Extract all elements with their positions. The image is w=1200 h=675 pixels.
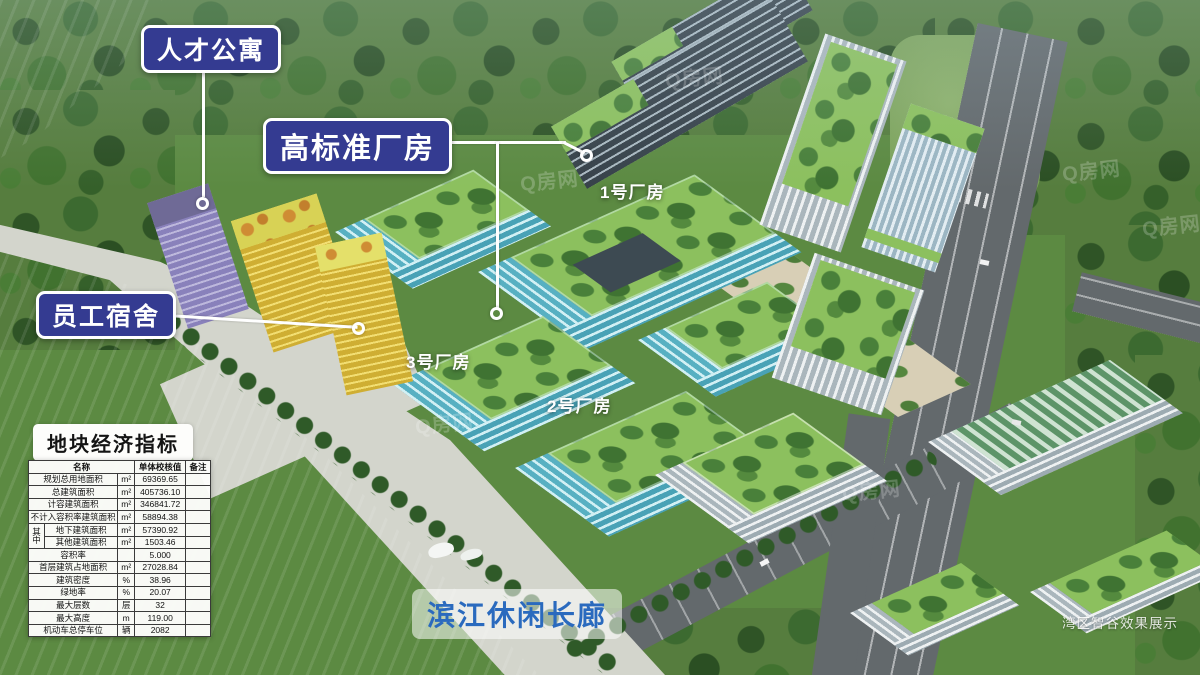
leader-line-factory-horizontal [446, 141, 566, 144]
table-row: 规划总用地面积m²69369.65 [29, 473, 211, 486]
riverside-corridor-label: 滨江休闲长廊 [412, 589, 622, 639]
q-watermark: Q房网 [1141, 207, 1200, 242]
q-watermark: Q房网 [664, 59, 725, 94]
q-watermark: Q房网 [841, 472, 902, 507]
rendering-canvas: Q房网 Q房网 Q房网 Q房网 Q房网 Q房网 人才公寓 高标准厂房 员工宿舍 … [0, 0, 1200, 675]
table-header-row: 名称 单体校核值 备注 [29, 461, 211, 474]
table-row: 首层建筑占地面积m²27028.84 [29, 561, 211, 574]
among-cell: 其中 [29, 523, 45, 548]
label-high-standard-factory-text: 高标准厂房 [280, 133, 435, 165]
riverside-corridor-text: 滨江休闲长廊 [427, 600, 607, 631]
table-row: 不计入容积率建筑面积m²58894.38 [29, 511, 211, 524]
label-talent-apartment: 人才公寓 [141, 25, 281, 73]
table-row: 最大层数层32 [29, 599, 211, 612]
label-staff-dormitory: 员工宿舍 [36, 291, 176, 339]
table-row: 其中地下建筑面积m²57390.92 [29, 523, 211, 536]
caption-text: 湾区智谷效果展示 [1062, 612, 1178, 632]
leader-dot-talent-apartment [196, 197, 209, 210]
roof-label-factory-3: 3号厂房 [406, 348, 470, 373]
table-row: 计容建筑面积m²346841.72 [29, 498, 211, 511]
q-watermark: Q房网 [414, 405, 475, 440]
table-row: 最大高度m119.00 [29, 612, 211, 625]
table-row: 建筑密度%38.96 [29, 574, 211, 587]
leader-dot-dormitory [352, 322, 365, 335]
roof-label-factory-2: 2号厂房 [547, 392, 611, 417]
table-title: 地块经济指标 [33, 424, 193, 461]
col-header-value: 单体校核值 [135, 461, 186, 474]
label-staff-dormitory-text: 员工宿舍 [52, 303, 160, 331]
leader-line-talent-apartment [202, 70, 205, 197]
roof-label-factory-1: 1号厂房 [600, 178, 664, 203]
q-watermark: Q房网 [519, 162, 580, 197]
leader-line-factory-vertical [496, 142, 499, 308]
label-talent-apartment-text: 人才公寓 [157, 37, 265, 65]
economic-indicators-table: 名称 单体校核值 备注 规划总用地面积m²69369.65 总建筑面积m²405… [28, 460, 211, 637]
table-row: 绿地率%20.07 [29, 586, 211, 599]
table-row: 总建筑面积m²405736.10 [29, 486, 211, 499]
q-watermark: Q房网 [1061, 152, 1122, 187]
col-header-remark: 备注 [186, 461, 211, 474]
table-row: 机动车总停车位辆2082 [29, 624, 211, 637]
leader-dot-factory-1 [580, 149, 593, 162]
label-high-standard-factory: 高标准厂房 [263, 118, 452, 174]
col-header-name: 名称 [29, 461, 135, 474]
table-row: 容积率5.000 [29, 549, 211, 562]
table-row: 其他建筑面积m²1503.46 [29, 536, 211, 549]
leader-dot-factory-3 [490, 307, 503, 320]
